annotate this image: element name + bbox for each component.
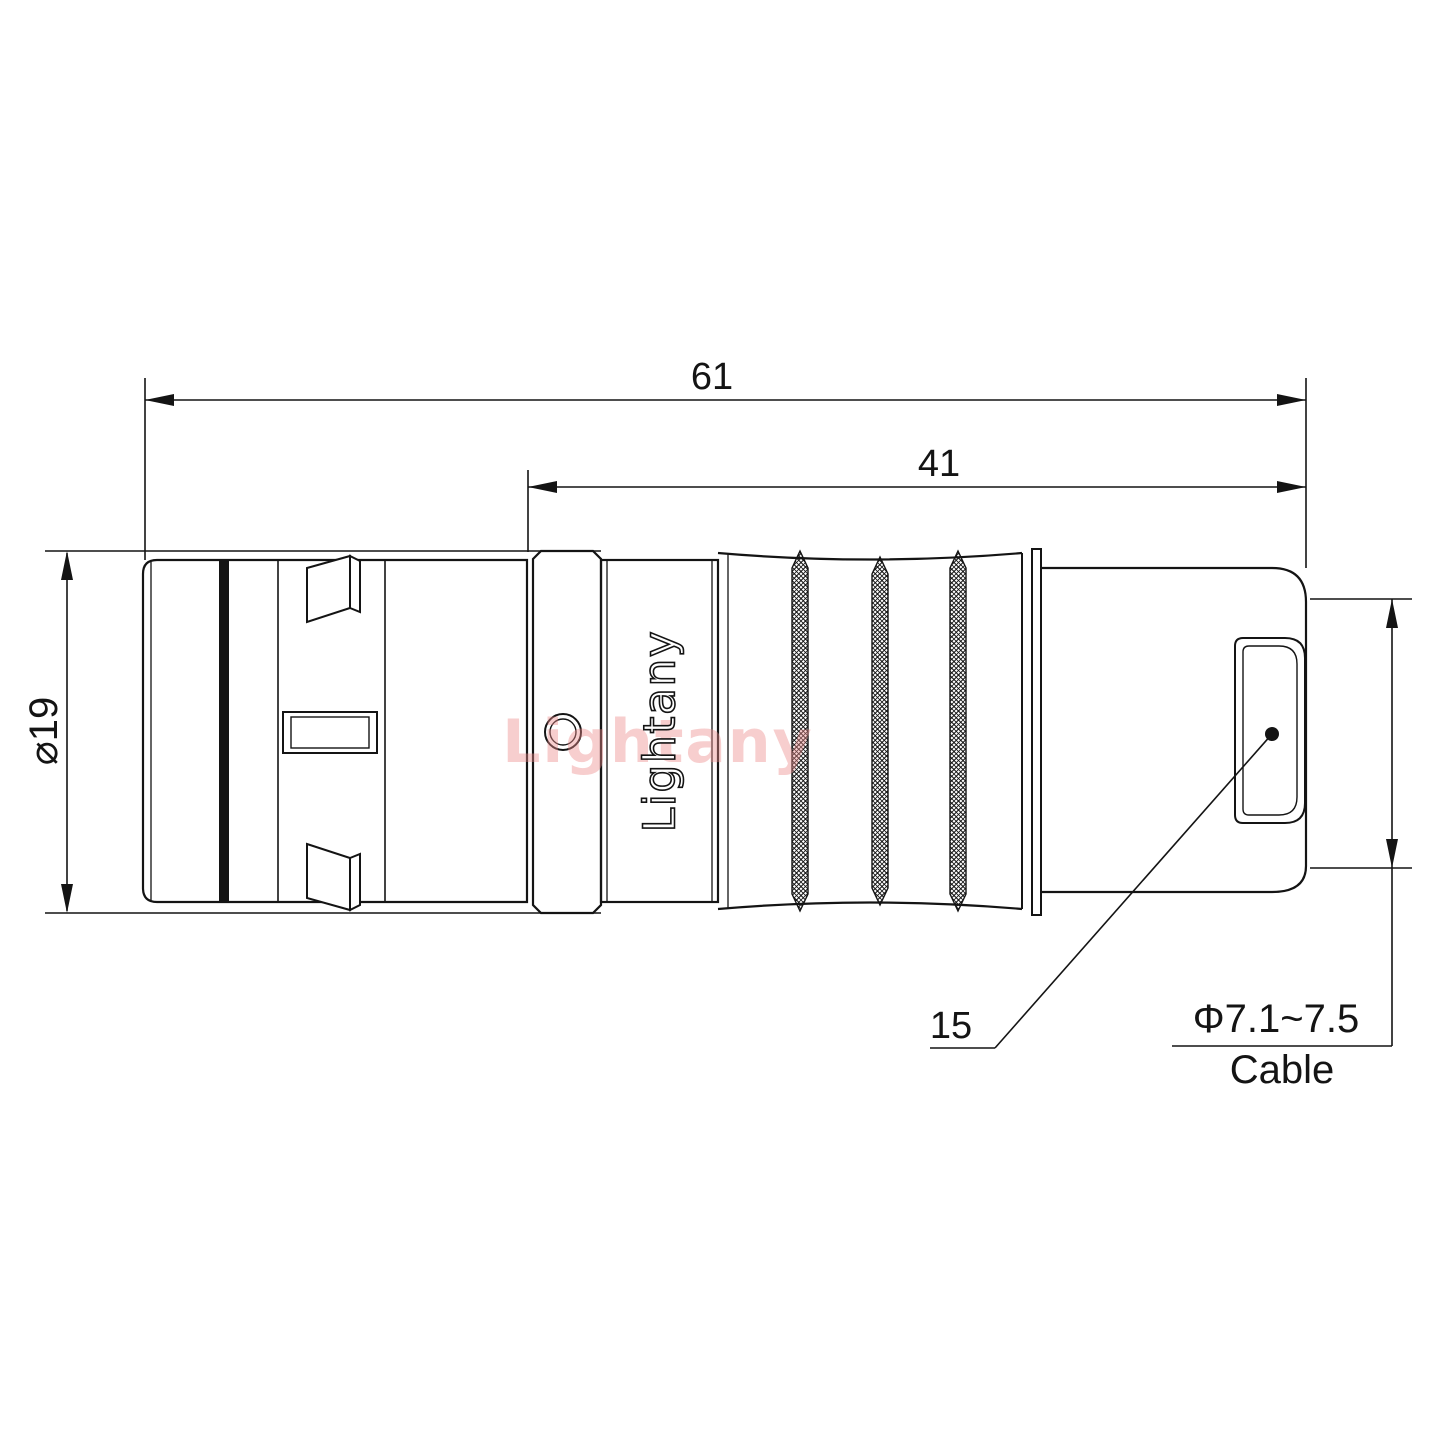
- leader-dot: [1265, 727, 1279, 741]
- overall-length-value: 61: [691, 358, 733, 396]
- technical-drawing-canvas: Lightany Lightany 61 41 ⌀19 15 Φ7.1~7.5 …: [0, 0, 1440, 1440]
- rear-length-value: 41: [918, 445, 960, 483]
- rim-ring: [1032, 549, 1041, 915]
- locking-band: [219, 561, 229, 901]
- knurl-band-2: [872, 557, 888, 905]
- dim-overall-length: [145, 378, 1306, 568]
- cable-label: Cable: [1230, 1050, 1335, 1090]
- barrel-brand-label: Lightany: [635, 630, 686, 833]
- backnut-size-value: 15: [930, 1007, 972, 1045]
- latch-flap-top: [307, 556, 360, 622]
- knurl-band-3: [950, 551, 966, 911]
- outer-diameter-value: ⌀19: [24, 697, 64, 766]
- cable-sleeve: [1041, 568, 1306, 892]
- latch-window: [283, 712, 377, 753]
- cable-diameter-value: Φ7.1~7.5: [1193, 999, 1359, 1039]
- latch-flap-bottom: [307, 844, 360, 910]
